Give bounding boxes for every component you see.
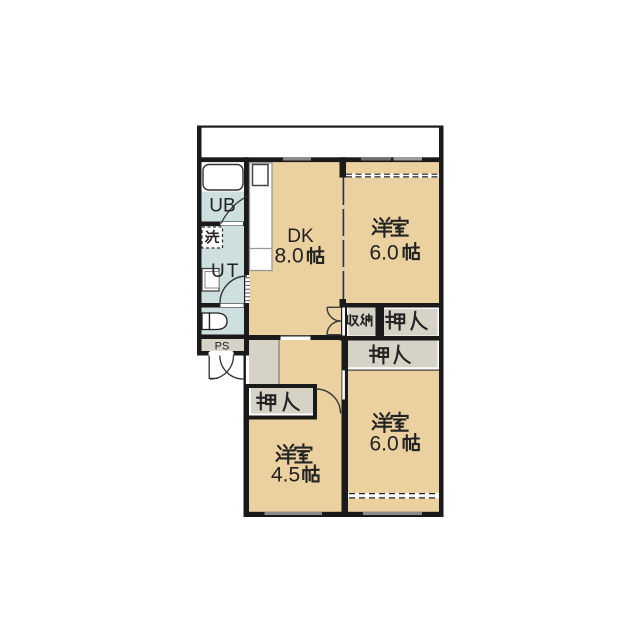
svg-text:8.0: 8.0 bbox=[275, 244, 304, 267]
svg-text:4.5: 4.5 bbox=[271, 464, 300, 487]
svg-text:UT: UT bbox=[211, 261, 240, 282]
svg-text:6.0: 6.0 bbox=[370, 241, 399, 264]
svg-text:6.0: 6.0 bbox=[370, 432, 399, 455]
svg-text:UB: UB bbox=[209, 196, 235, 217]
svg-text:PS: PS bbox=[215, 341, 230, 353]
